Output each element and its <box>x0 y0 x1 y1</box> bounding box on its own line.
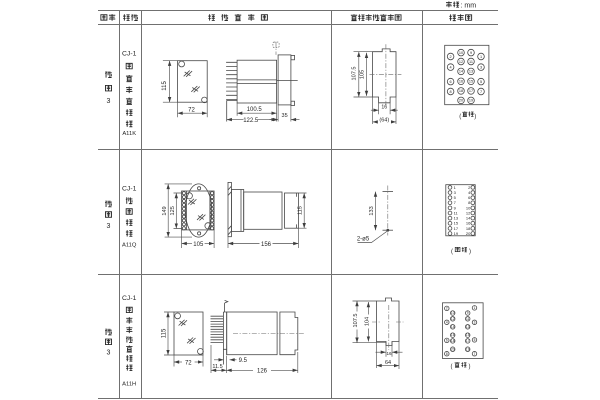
svg-text:20: 20 <box>466 231 471 236</box>
svg-text:115: 115 <box>298 206 304 215</box>
svg-text:20: 20 <box>451 347 455 351</box>
svg-text:19: 19 <box>469 99 473 103</box>
svg-text:1: 1 <box>480 55 482 59</box>
svg-text:12: 12 <box>451 317 455 321</box>
svg-text:A11H: A11H <box>122 382 136 388</box>
svg-text:6: 6 <box>450 80 452 84</box>
svg-text:8: 8 <box>450 90 452 94</box>
svg-text:14: 14 <box>459 70 463 74</box>
svg-text:18: 18 <box>451 339 455 343</box>
svg-text:): ) <box>469 364 471 370</box>
svg-text:11.5: 11.5 <box>212 364 222 370</box>
svg-text:2-ø5: 2-ø5 <box>357 237 370 243</box>
svg-text:107.5: 107.5 <box>352 67 358 81</box>
svg-text:15: 15 <box>466 333 470 337</box>
svg-text:6: 6 <box>446 339 448 343</box>
svg-text:1: 1 <box>474 306 476 310</box>
svg-text:(64): (64) <box>379 118 389 124</box>
svg-text:3: 3 <box>474 320 476 324</box>
svg-text:): ) <box>474 114 476 120</box>
svg-text:13: 13 <box>466 325 470 329</box>
svg-text:): ) <box>469 249 471 255</box>
svg-text:9: 9 <box>467 311 469 315</box>
svg-text:16: 16 <box>386 351 392 356</box>
svg-text:7: 7 <box>474 352 476 356</box>
svg-text:115: 115 <box>162 328 168 338</box>
svg-text:14: 14 <box>451 325 455 329</box>
svg-text:72: 72 <box>185 360 192 366</box>
svg-text:125: 125 <box>170 206 176 215</box>
svg-text:5: 5 <box>474 338 476 342</box>
svg-text:4: 4 <box>450 65 452 69</box>
svg-text:11: 11 <box>469 60 473 64</box>
svg-text:115: 115 <box>162 81 168 91</box>
svg-text:(: ( <box>459 114 461 120</box>
svg-text:72: 72 <box>188 107 195 113</box>
svg-text:13: 13 <box>469 70 473 74</box>
svg-text:10: 10 <box>459 51 463 55</box>
svg-text:: mm: : mm <box>461 3 477 10</box>
svg-text:17: 17 <box>466 339 470 343</box>
svg-text:8: 8 <box>446 352 448 356</box>
svg-text:10: 10 <box>451 311 455 315</box>
svg-text:16: 16 <box>459 80 463 84</box>
svg-text:16: 16 <box>381 104 387 110</box>
svg-text:CJ-1: CJ-1 <box>122 185 137 192</box>
svg-text:2: 2 <box>446 307 448 311</box>
svg-text:20: 20 <box>459 99 463 103</box>
svg-text:4: 4 <box>446 320 448 324</box>
svg-text:16: 16 <box>451 333 455 337</box>
svg-text:35: 35 <box>282 113 288 119</box>
svg-text:2: 2 <box>450 55 452 59</box>
svg-text:3: 3 <box>480 65 482 69</box>
svg-text:122.5: 122.5 <box>243 118 259 124</box>
svg-text:3: 3 <box>107 98 111 105</box>
svg-text:5: 5 <box>480 80 482 84</box>
svg-text:12: 12 <box>459 60 463 64</box>
svg-text:105: 105 <box>193 242 204 248</box>
svg-text:17: 17 <box>469 89 473 93</box>
svg-text:18: 18 <box>459 89 463 93</box>
svg-text:19: 19 <box>466 347 470 351</box>
svg-text:7: 7 <box>480 90 482 94</box>
svg-text:3: 3 <box>107 350 111 357</box>
svg-text:(: ( <box>451 249 453 255</box>
svg-text:15: 15 <box>469 80 473 84</box>
svg-text:A11Q: A11Q <box>122 243 137 249</box>
svg-text:133: 133 <box>369 206 375 215</box>
svg-text:100.5: 100.5 <box>247 107 263 113</box>
svg-text:104: 104 <box>364 317 370 326</box>
svg-text:149: 149 <box>162 206 168 215</box>
svg-text:19: 19 <box>454 231 459 236</box>
svg-text:107.5: 107.5 <box>353 314 359 328</box>
svg-text:64: 64 <box>385 360 391 366</box>
svg-text:11: 11 <box>466 317 470 321</box>
svg-text:9.5: 9.5 <box>239 358 248 364</box>
svg-text:A11K: A11K <box>122 131 136 137</box>
svg-text:CJ-1: CJ-1 <box>122 295 137 302</box>
svg-text:9: 9 <box>470 51 472 55</box>
svg-text:156: 156 <box>261 242 272 248</box>
svg-text:126: 126 <box>257 369 268 375</box>
svg-text:(: ( <box>451 364 453 370</box>
svg-text:105: 105 <box>360 70 366 79</box>
svg-text:CJ-1: CJ-1 <box>122 50 137 57</box>
svg-text:3: 3 <box>107 223 111 230</box>
